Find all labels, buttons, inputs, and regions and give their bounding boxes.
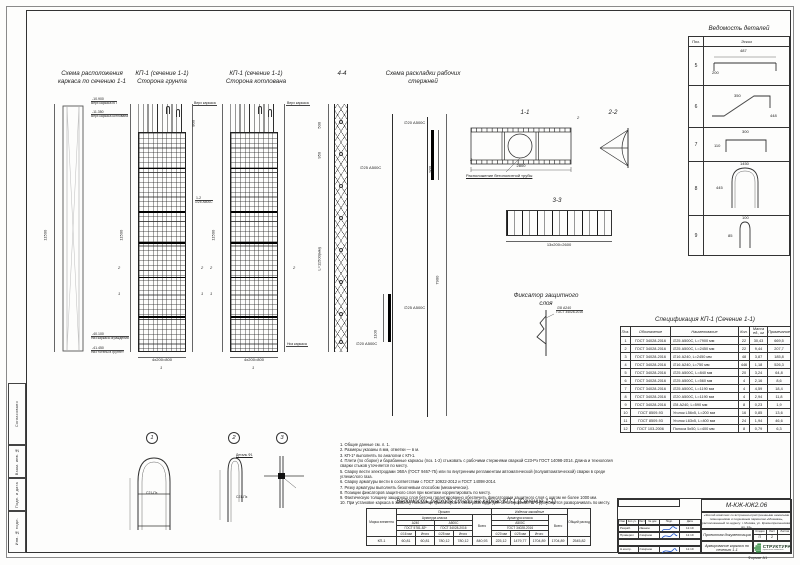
section-mark: 2 (210, 266, 212, 271)
detail-1-weld-mark: С21-Пз (146, 492, 157, 496)
detail-poz: 9 (689, 216, 704, 256)
drawing-sheet: { "sheet": { "format_label": "Формат А1"… (0, 0, 800, 565)
section-3-3-drawing (506, 210, 612, 236)
company-tagline: проектная компания (763, 549, 791, 551)
title-kp1-pit: КП-1 (сечение 1-1) Сторона котлована (218, 70, 294, 86)
detail-poz: 8 (689, 162, 704, 216)
title-section-1-1: 1-1 (512, 109, 538, 117)
section-mark: 2 (118, 266, 120, 271)
details-col-sketch: Эскиз (704, 37, 790, 47)
spec-header-row: Поз. Обозначение Наименование Кол. Масса… (621, 327, 791, 337)
cage-ground-height-dim: 11500 (119, 230, 124, 241)
wall-elevation-drawing (60, 104, 88, 354)
strip-vzam: Взам. инв. № (8, 445, 26, 478)
signature-row-3: Н.контр. Смирнов 12.19 (618, 546, 701, 554)
detail-poz: 6 (689, 86, 704, 128)
bar-label-1: ∅25 А500С (360, 166, 381, 171)
fixator-label: ∅8 А240 ГОСТ 34028-2016 (556, 306, 583, 315)
cage-ground-top-dim: 800 (191, 120, 196, 127)
steel-row-mark: КП-1 (367, 537, 397, 546)
structura-logo-icon (754, 543, 761, 553)
company-logo-cell: СТРУКТУРА проектная компания (753, 541, 792, 554)
bars-dim-line-long (446, 114, 447, 416)
lattice-dim-line (328, 104, 329, 352)
strip-inv-label: Инв. № подл. (15, 518, 19, 545)
title-section-2-2: 2-2 (600, 109, 626, 117)
working-bar-1 (392, 114, 393, 416)
signature-row-1: Разраб. Иванов 12.19 (618, 525, 701, 532)
elevation-mark-top-1: -10.900 Верх каркаса КП (91, 97, 117, 106)
format-label: Формат А1 (748, 556, 767, 560)
bar-label-4: ∅20 А500С (356, 342, 377, 347)
bars-dim-line-top (438, 130, 439, 180)
steel-gost-2: ГОСТ 34028-2016 (435, 526, 473, 531)
cage-pit-dim-right (284, 104, 285, 352)
steel-table: Марка элемента Прокат Изделия закладные … (366, 508, 591, 546)
fixator-drawing (524, 308, 556, 358)
working-bar-2 (427, 117, 428, 417)
section-mark: 2 (470, 158, 472, 163)
note-item: 5. Сварку вести электродами Э50А (ГОСТ 9… (340, 469, 624, 480)
bars-dim-long: 7900 (435, 276, 440, 285)
cage-ground-bar-label: 1-2 ∅25 А500С (195, 196, 213, 205)
elevation-dim-line (54, 104, 55, 352)
title-block: Изм. Кол.уч. Лист № док. Подп. Дата Разр… (617, 498, 791, 553)
detail-bubble-1: 1 (146, 432, 158, 444)
spec-table-title: Спецификация КП-1 (Сечение 1-1) (620, 316, 790, 324)
detail-bubble-2: 2 (228, 432, 240, 444)
signature-icon (660, 526, 680, 531)
spec-row: 2ГОСТ 34028-2016∅25 А500С, L=2450 мм229,… (621, 345, 791, 353)
cage-pit-bottom-callout: Низ каркаса (286, 342, 308, 347)
details-table-title: Ведомость деталей (688, 25, 790, 33)
detail-poz: 5 (689, 47, 704, 86)
spec-row: 3ГОСТ 34028-2016∅16 А240, L=2450 мм483,8… (621, 353, 791, 361)
section-mark: 1 (252, 366, 254, 371)
pipe-note: Расположение бетонолитной трубы (466, 174, 532, 179)
cage-pit-height-dim: 11500 (211, 230, 216, 241)
spec-table: Поз. Обозначение Наименование Кол. Масса… (620, 326, 791, 433)
spec-row: 12ГОСТ 103-2006Полоса 5х50, L=400 мм80,7… (621, 425, 791, 433)
notes-block: 1. Общие данные см. л. 1. 2. Размеры ука… (340, 442, 624, 506)
bars-dim-top: 900 (428, 166, 433, 173)
strip-inv: Инв. № подл. (8, 511, 26, 553)
strip-vzam-label: Взам. инв. № (15, 448, 19, 475)
elevation-mark-top-2: -11.350 Верх каркаса котлована (91, 110, 128, 119)
title-section-3-3: 3-3 (544, 197, 570, 205)
lattice-dim-2: 950 (317, 152, 322, 159)
strip-agreed: Согласовано (8, 383, 26, 445)
details-table: Поз. Эскиз 5 487 200 6 350 448 7 (688, 36, 790, 256)
title-block-corner-box (618, 499, 680, 507)
doc-number-cell: М-КЖ-КЖ2.06 (701, 499, 792, 512)
cage-pit-top-callout: Верх каркаса (286, 101, 310, 106)
spec-row: 6ГОСТ 34028-2016∅25 А500С, L=560 мм42,16… (621, 377, 791, 385)
steel-total-1: Всего (473, 515, 492, 537)
cage-pit-dim-left (222, 104, 223, 352)
cage-pit-hook-1 (258, 106, 262, 114)
note-item: 4. Плети (по сборке) и барабанные каркас… (340, 458, 624, 469)
detail-3-drawing (262, 450, 306, 514)
spec-row: 8ГОСТ 34028-2016∅20 А500С, L=1190 мм42,9… (621, 393, 791, 401)
section-mark: 2 (201, 266, 203, 271)
section-mark: 2 (577, 116, 579, 121)
cage-ground-hook-2 (176, 109, 180, 117)
lattice-column (334, 104, 348, 352)
detail-bubble-3: 3 (276, 432, 288, 444)
section-mark: 1 (118, 292, 120, 297)
cage-ground-dim-left (130, 104, 131, 352)
spec-row: 1ГОСТ 34028-2016∅25 А500С, L=7900 мм2230… (621, 337, 791, 345)
spec-row: 10ГОСТ 8509-93Уголок L56х5, L=200 мм160,… (621, 409, 791, 417)
spec-row: 7ГОСТ 34028-2016∅25 А500С, L=1190 мм44,5… (621, 385, 791, 393)
strip-podp-label: Подп. и дата (15, 482, 19, 508)
elevation-mark-bottom-1: -40.100 Низ каркаса ограждения (91, 332, 129, 341)
detail-poz: 7 (689, 128, 704, 162)
signature-icon (660, 533, 680, 538)
bars-dim-line-bottom (383, 294, 384, 342)
cage-pit-bottom-dim: 4х200=800 (230, 358, 278, 363)
lattice-dim-1: 500 (317, 122, 322, 129)
cage-pit-hook-2 (268, 109, 272, 117)
cage-ground-dim-right (192, 104, 193, 352)
title-bars-scheme: Схема раскладки рабочих стержней (374, 70, 472, 86)
strip-podp: Подп. и дата (8, 478, 26, 511)
cage-ground-grid (138, 132, 186, 352)
detail-2-drawing (214, 450, 254, 526)
section-mark: 1 (201, 292, 203, 297)
spec-row: 9ГОСТ 34028-2016∅8 А240, L=590 мм80,231,… (621, 401, 791, 409)
title-section-4-4: 4-4 (330, 70, 354, 78)
steel-total-2: Всего (549, 515, 568, 537)
cage-pit-grid (230, 132, 278, 352)
details-col-poz: Поз. (689, 37, 704, 47)
detail-2-note: Деталь Ф1 (236, 454, 253, 458)
steel-col-grand: Общий расход (568, 509, 591, 537)
stage-grid: Стадия Лист Листов П 2 (753, 529, 792, 541)
bar-label-2: ∅20 А500С (404, 121, 425, 126)
detail-sketch-hairpin-small (704, 216, 788, 250)
cage-ground-hook-1 (166, 106, 170, 114)
section-1-1-width-dim: 2800 (466, 164, 576, 169)
strip-agreed-label: Согласовано (15, 401, 19, 427)
title-kp1-ground: КП-1 (сечение 1-1) Сторона грунта (126, 70, 198, 86)
bars-dim-bottom: 1100 (373, 330, 378, 339)
steel-col-mark: Марка элемента (367, 509, 397, 537)
spec-row: 4ГОСТ 34028-2016∅16 А240, L=750 мм4461,1… (621, 361, 791, 369)
lap-splice-bottom (388, 294, 391, 342)
section-mark: 2 (293, 266, 295, 271)
section-mark: 1 (160, 366, 162, 371)
signature-row-2: Проверил Смирнов 12.19 (618, 532, 701, 539)
section-3-3-width-dim: 13х200=2600 (506, 243, 612, 248)
bar-label-3: ∅25 А500С (404, 306, 425, 311)
lattice-length-dim: L=11500(мм) (317, 247, 322, 271)
elevation-height-dim: 11500 (43, 230, 48, 241)
doc-type-cell: Проектная документация (701, 529, 753, 541)
cage-ground-top-callout: Верх каркаса (193, 101, 217, 106)
steel-table-title: Ведомость расхода стали на каркас КП-1 (… (356, 499, 596, 507)
project-description: «Жилой комплекс со встроенно-пристроенны… (701, 512, 792, 529)
cage-ground-bottom-dim: 4х200=800 (138, 358, 186, 363)
signature-row-blank (618, 539, 701, 546)
spec-row: 11ГОСТ 8509-93Уголок L63х5, L=400 мм241,… (621, 417, 791, 425)
steel-data-row: КП-1 60,81 60,81 780,12 780,12 840,93 22… (367, 537, 591, 546)
section-2-2-drawing (596, 120, 640, 172)
section-mark: 1 (210, 292, 212, 297)
spec-row: 5ГОСТ 34028-2016∅25 А500С, L=840 мм203,2… (621, 369, 791, 377)
signature-icon (660, 547, 680, 553)
detail-2-weld-mark: С21-Пз (236, 496, 247, 500)
drawing-title-cell: Армирование каркаса по сечению 1-1 (701, 541, 753, 554)
elevation-mark-bottom-2: -41.450 Низ «стены в грунте» (91, 346, 124, 355)
